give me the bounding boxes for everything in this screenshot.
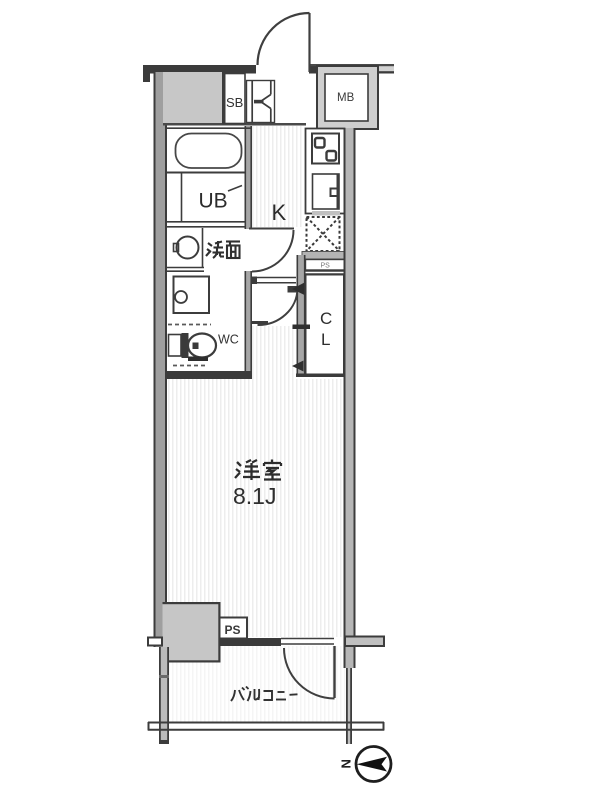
- svg-text:UB: UB: [199, 190, 228, 213]
- svg-text:L: L: [321, 330, 330, 349]
- svg-text:K: K: [272, 200, 287, 225]
- svg-text:WC: WC: [218, 333, 239, 347]
- svg-text:SB: SB: [226, 95, 243, 110]
- svg-text:PS: PS: [321, 263, 331, 270]
- svg-text:PS: PS: [225, 623, 241, 637]
- svg-text:C: C: [320, 309, 332, 328]
- svg-text:8.1J: 8.1J: [233, 483, 276, 509]
- svg-text:MB: MB: [337, 92, 355, 104]
- svg-text:N: N: [339, 759, 354, 768]
